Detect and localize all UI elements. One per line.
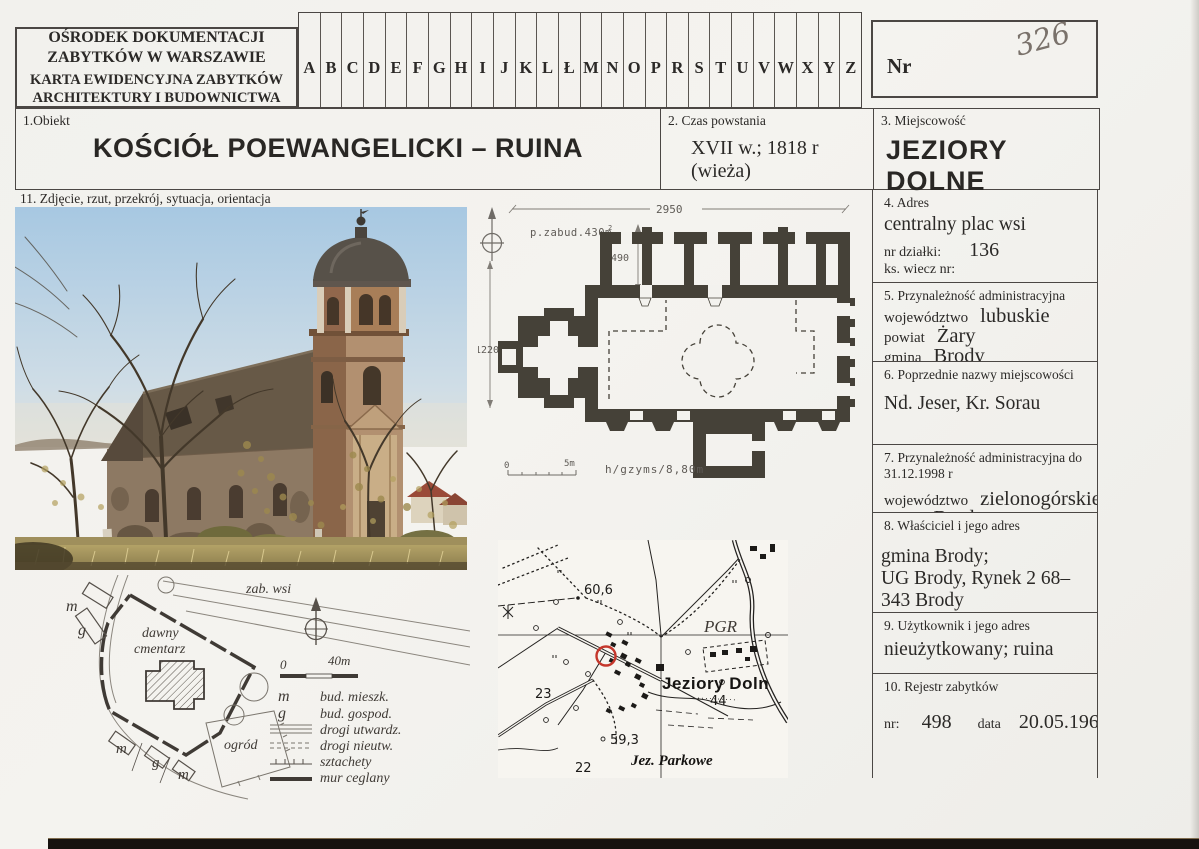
svg-text:dawny: dawny <box>142 626 179 641</box>
locality-cell: 3. Miejscowość JEZIORY DOLNE <box>873 109 1099 189</box>
object-cell: 1.Obiekt KOŚCIÓŁ POEWANGELICKI – RUINA <box>16 109 660 189</box>
svg-text:bud. mieszk.: bud. mieszk. <box>320 690 389 705</box>
section11-label: 11. Zdjęcie, rzut, przekrój, sytuacja, o… <box>20 191 271 207</box>
identification-row: 1.Obiekt KOŚCIÓŁ POEWANGELICKI – RUINA 2… <box>15 108 1100 190</box>
rejestr-nr-value: 498 <box>922 711 952 734</box>
svg-text:22: 22 <box>575 761 592 776</box>
svg-text:g: g <box>152 755 160 771</box>
section-przynaleznosc-1998: 7. Przynależność administracyjna do 31.1… <box>873 445 1097 513</box>
adres-value: centralny plac wsi <box>884 214 1089 236</box>
alphabet-letter: I <box>471 13 493 107</box>
section-wlasciciel: 8. Właściciel i jego adres gmina Brody; … <box>873 513 1097 613</box>
construction-date-label: 2. Czas powstania <box>668 113 766 129</box>
section-adres: 4. Adres centralny plac wsi nr działki: … <box>873 190 1097 283</box>
svg-text:drogi utwardz.: drogi utwardz. <box>320 723 401 738</box>
alphabet-letter: C <box>341 13 363 107</box>
card-title-line1: KARTA EWIDENCYJNA ZABYTKÓW <box>17 72 296 90</box>
svg-text:m: m <box>178 767 189 783</box>
alphabet-letter: N <box>601 13 623 107</box>
location-map: 60,6 PGR Jeziory Doln 44 23 59,3 22 Jez.… <box>498 540 788 778</box>
construction-date-cell: 2. Czas powstania XVII w.; 1818 r (wieża… <box>660 109 873 189</box>
svg-text:m: m <box>66 598 78 615</box>
svg-text:5m: 5m <box>564 459 575 469</box>
object-name: KOŚCIÓŁ POEWANGELICKI – RUINA <box>16 133 660 164</box>
wojewodztwo-value: lubuskie <box>980 305 1049 328</box>
section-rejestr: 10. Rejestr zabytków nr: 498 data 20.05.… <box>873 674 1097 778</box>
alphabet-letter: K <box>515 13 537 107</box>
alphabet-letter: J <box>493 13 515 107</box>
wlasciciel-line2: UG Brody, Rynek 2 68–343 Brody <box>881 568 1089 612</box>
gmina-value: Brody <box>934 345 985 362</box>
rejestr-label: 10. Rejestr zabytków <box>884 679 1089 695</box>
alphabet-letter: T <box>709 13 731 107</box>
svg-text:m: m <box>278 688 290 705</box>
card-title-line2: ARCHITEKTURY I BUDOWNICTWA <box>17 90 296 108</box>
svg-text:p.zabud.430m: p.zabud.430m <box>530 227 612 239</box>
przynaleznosc-1998-label: 7. Przynależność administracyjna do 31.1… <box>884 450 1089 482</box>
alphabet-letter: D <box>363 13 385 107</box>
construction-date-value: XVII w.; 1818 r (wieża) <box>691 137 873 183</box>
svg-text:59,3: 59,3 <box>610 733 639 748</box>
rejestr-data-value: 20.05.1963 <box>1019 711 1097 734</box>
svg-text:60,6: 60,6 <box>584 583 613 598</box>
poprzednie-nazwy-value: Nd. Jeser, Kr. Sorau <box>884 393 1089 415</box>
svg-text:m: m <box>116 741 127 757</box>
svg-text:1220: 1220 <box>478 345 499 356</box>
svg-text:cmentarz: cmentarz <box>134 642 186 657</box>
alphabet-letter: Y <box>818 13 840 107</box>
svg-text:drogi nieutw.: drogi nieutw. <box>320 739 393 754</box>
svg-text:0: 0 <box>504 461 509 471</box>
card-number-box: Nr 326 <box>871 20 1098 98</box>
scan-edge-bottom <box>48 838 1199 849</box>
nr-label: Nr <box>887 54 912 79</box>
alphabet-letter: A <box>299 13 320 107</box>
alphabet-letter: Ł <box>558 13 580 107</box>
rejestr-nr-label: nr: <box>884 717 900 733</box>
office-name-line1: OŚRODEK DOKUMENTACJI <box>17 28 296 48</box>
alphabet-letter: P <box>645 13 667 107</box>
floor-plan: 2950 p.zabud.430m 2 490 1220 <box>478 203 868 533</box>
site-sketch: zab. wsi dawny cmentarz ogród m g m g m … <box>58 575 470 803</box>
section-poprzednie-nazwy: 6. Poprzednie nazwy miejscowości Nd. Jes… <box>873 362 1097 445</box>
alphabet-letter: L <box>536 13 558 107</box>
poprzednie-nazwy-label: 6. Poprzednie nazwy miejscowości <box>884 367 1089 383</box>
svg-text:h/gzyms/8,80m: h/gzyms/8,80m <box>605 463 704 476</box>
alphabet-letter: G <box>428 13 450 107</box>
object-label: 1.Obiekt <box>23 113 70 129</box>
alphabet-letter: X <box>796 13 818 107</box>
alphabet-letter: O <box>623 13 645 107</box>
alphabet-letter: U <box>731 13 753 107</box>
wlasciciel-line1: gmina Brody; <box>881 546 1089 568</box>
locality-value: JEZIORY DOLNE <box>886 135 1099 197</box>
alphabet-letter: H <box>450 13 472 107</box>
svg-text:PGR: PGR <box>703 617 738 636</box>
svg-text:Jez. Parkowe: Jez. Parkowe <box>630 753 713 769</box>
svg-text:2: 2 <box>608 224 612 232</box>
office-name-line2: ZABYTKÓW W WARSZAWIE <box>17 48 296 68</box>
svg-text:2950: 2950 <box>656 203 683 216</box>
alphabet-letter: M <box>580 13 602 107</box>
issuing-office-box: OŚRODEK DOKUMENTACJI ZABYTKÓW W WARSZAWI… <box>15 27 298 108</box>
svg-text:sztachety: sztachety <box>320 755 372 770</box>
section-przynaleznosc: 5. Przynależność administracyjna wojewód… <box>873 283 1097 362</box>
svg-text:Jeziory Doln: Jeziory Doln <box>662 674 769 693</box>
uzytkownik-label: 9. Użytkownik i jego adres <box>884 618 1089 634</box>
alphabet-letter: R <box>666 13 688 107</box>
locality-label: 3. Miejscowość <box>881 113 966 129</box>
church-footprint <box>146 661 204 709</box>
svg-text:40m: 40m <box>328 653 350 668</box>
svg-text:44: 44 <box>710 694 727 709</box>
alphabet-letter: E <box>385 13 407 107</box>
alphabet-letter: S <box>688 13 710 107</box>
svg-text:bud. gospod.: bud. gospod. <box>320 707 392 722</box>
section-uzytkownik: 9. Użytkownik i jego adres nieużytkowany… <box>873 613 1097 674</box>
powiat-label: powiat <box>884 330 925 347</box>
svg-text:ogród: ogród <box>224 738 258 753</box>
alphabet-letter: B <box>320 13 342 107</box>
wlasciciel-label: 8. Właściciel i jego adres <box>884 518 1089 534</box>
plot-number-label: nr działki: <box>884 245 941 261</box>
scan-edge-shadow <box>1190 0 1199 849</box>
alphabet-letter: V <box>753 13 775 107</box>
land-register-label: ks. wiecz nr: <box>884 262 1089 278</box>
alphabet-letter: Z <box>839 13 861 107</box>
svg-text:23: 23 <box>535 687 552 702</box>
svg-text:0: 0 <box>280 657 287 672</box>
wojewodztwo-1998-value: zielonogórskie <box>980 488 1097 511</box>
plot-number-value: 136 <box>969 239 999 262</box>
alphabet-strip: ABCDEFGHIJKLŁMNOPRSTUVWXYZ <box>298 12 862 108</box>
adres-label: 4. Adres <box>884 195 1089 211</box>
plan-north-arrow <box>480 217 504 261</box>
svg-text:g: g <box>78 622 86 639</box>
rejestr-data-label: data <box>978 717 1001 733</box>
details-column: 4. Adres centralny plac wsi nr działki: … <box>872 190 1098 778</box>
svg-text:zab. wsi: zab. wsi <box>245 582 291 597</box>
svg-text:490: 490 <box>611 253 629 264</box>
alphabet-letter: F <box>406 13 428 107</box>
uzytkownik-value: nieużytkowany; ruina <box>884 639 1089 661</box>
handwritten-card-number: 326 <box>1011 15 1073 62</box>
gmina-label: gmina <box>884 350 922 362</box>
przynaleznosc-label: 5. Przynależność administracyjna <box>884 288 1089 304</box>
church-photo <box>15 207 467 570</box>
alphabet-letter: W <box>774 13 796 107</box>
karta-ewidencyjna-scan: OŚRODEK DOKUMENTACJI ZABYTKÓW W WARSZAWI… <box>0 0 1199 849</box>
svg-text:mur ceglany: mur ceglany <box>320 771 390 786</box>
svg-text:g: g <box>278 705 286 722</box>
